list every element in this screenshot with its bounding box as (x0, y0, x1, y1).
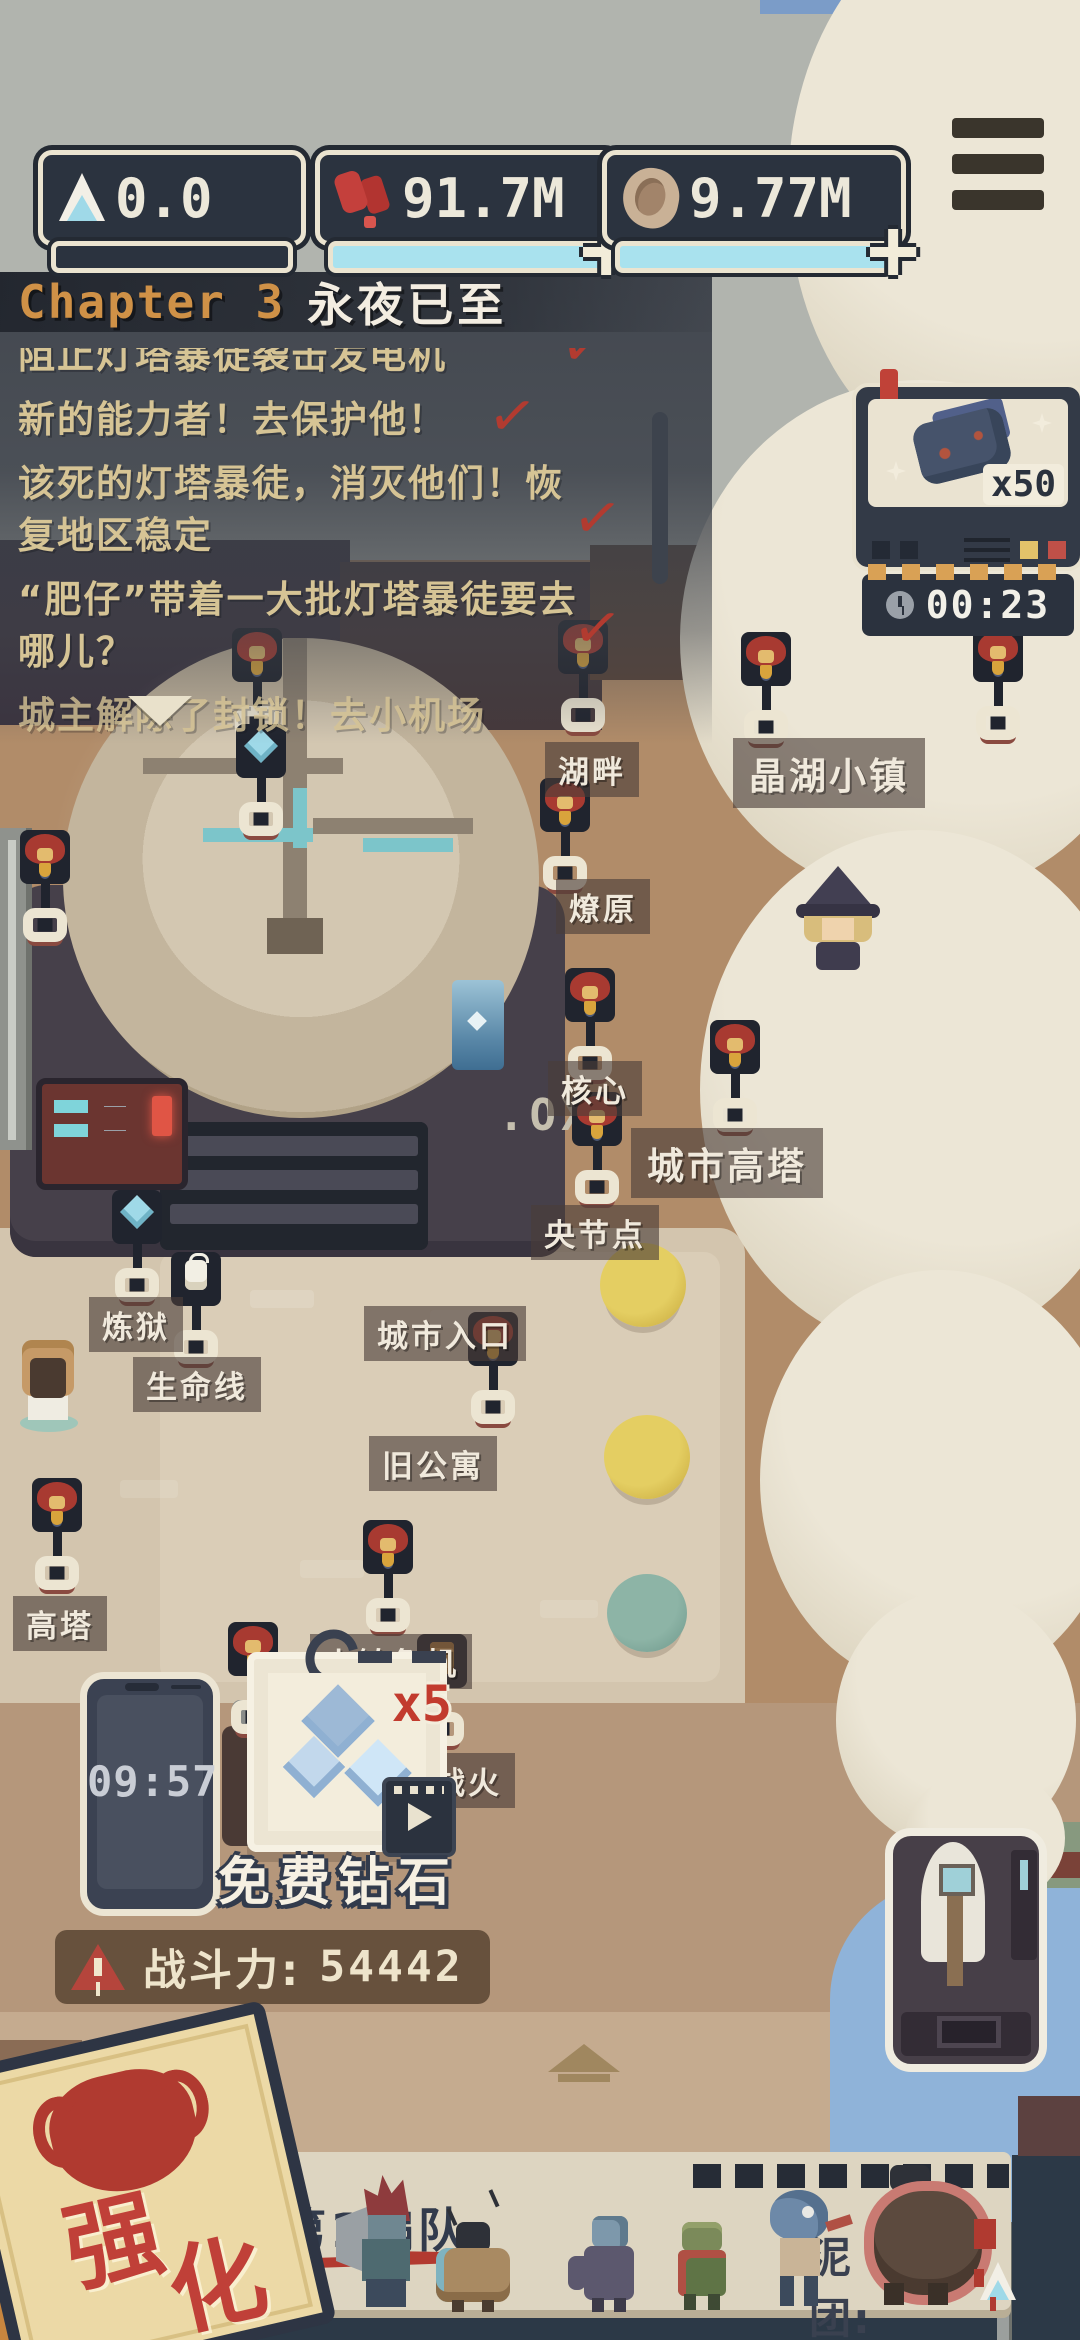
ad-timer: 00:23 (862, 574, 1074, 636)
squad-character-bear-tank (862, 2165, 986, 2313)
red-hood-sign-icon (363, 1520, 413, 1574)
combat-power-badge[interactable]: 战斗力: 54442 (55, 1930, 490, 2004)
map-label-city-entrance: 城市入口 (364, 1306, 526, 1361)
ad-quantity-badge: x50 (983, 464, 1064, 505)
quest-item[interactable]: “肥仔”带着一大批灯塔暴徒要去哪儿？ ✓ (18, 574, 578, 678)
game-screen: .OXE (0, 0, 1080, 2340)
paving-mark (300, 1560, 364, 1578)
ad-reward-widget[interactable]: x50 (852, 383, 1080, 571)
red-hood-sign-icon (565, 968, 615, 1022)
add-shells-button[interactable]: + (867, 207, 919, 293)
ad-timer-value: 00:23 (926, 583, 1050, 627)
red-hood-sign-icon (710, 1020, 760, 1074)
red-hood-sign-icon (32, 1478, 82, 1532)
shrine-side-panel (1011, 1850, 1037, 1960)
quest-item[interactable]: 城主解除了封锁！去小机场 (18, 690, 658, 742)
dome-control-panel (36, 1078, 188, 1190)
right-roof-bit (1018, 2096, 1080, 2156)
expand-chevron-up-icon[interactable] (548, 2044, 620, 2072)
free-diamonds-label: 免费钻石 (218, 1840, 458, 1915)
squad-character-beetle (430, 2222, 520, 2312)
resource-shells-pill[interactable]: 9.77M + (602, 150, 906, 246)
shell-icon (617, 163, 684, 233)
map-label-central-node: 央节点 (531, 1205, 659, 1260)
iceberg-icon (59, 169, 105, 227)
resource-gems-pill[interactable]: 91.7M + (315, 150, 619, 246)
marker-base-ring (976, 706, 1020, 740)
red-hood-sign-icon (741, 632, 791, 686)
combat-power-value: 54442 (319, 1942, 463, 1992)
resource-shells-value: 9.77M (689, 167, 852, 230)
map-label-crystal-lake-town: 晶湖小镇 (733, 738, 925, 808)
quest-item[interactable]: 阻止灯塔暴徒袭击发电机 ✓ (18, 330, 618, 382)
squad-character-robed (570, 2216, 650, 2314)
phone-time: 09:57 (87, 1757, 213, 1806)
quest-scrollbar[interactable] (652, 412, 668, 584)
blue-gem-sign-icon (112, 1190, 162, 1244)
squad-character-green-soldier (668, 2222, 738, 2314)
witch-hat-icon (802, 866, 874, 908)
map-label-city-tower: 城市高塔 (631, 1128, 823, 1198)
ad-reward-screen: x50 (868, 399, 1068, 507)
marker-base-ring (366, 1598, 410, 1632)
resource-ice-pill[interactable]: 0.0 (38, 150, 306, 246)
quest-check-icon: ✓ (570, 599, 627, 658)
marker-base-ring (239, 802, 283, 836)
left-pipe-highlight (8, 840, 16, 1140)
dome-banner (452, 980, 504, 1070)
resource-gems-value: 91.7M (402, 167, 565, 230)
chapter-label: Chapter 3 (18, 275, 285, 329)
combat-power-label: 战斗力: (143, 1936, 301, 1998)
quest-item[interactable]: 该死的灯塔暴徒，消灭他们！恢复地区稳定 ✓ (18, 458, 578, 562)
dome-grille (160, 1122, 428, 1250)
right-column (1012, 2155, 1080, 2340)
paving-mark (540, 1600, 598, 1618)
sparkle-icon (886, 461, 906, 481)
yellow-ball-2 (604, 1415, 690, 1499)
phone-speaker (125, 1683, 159, 1691)
marker-base-ring (471, 1390, 515, 1424)
map-label-high-tower: 高塔 (13, 1596, 107, 1651)
quest-item[interactable]: 新的能力者！去保护他！ ✓ (18, 394, 658, 446)
marker-base-ring (35, 1556, 79, 1590)
free-diamonds-popup[interactable]: x5 (247, 1652, 447, 1852)
phone-widget[interactable]: 09:57 (80, 1672, 220, 1916)
red-gem-icon (336, 168, 392, 228)
quest-collapse-chevron-down-icon[interactable] (128, 696, 192, 726)
squad-character-axe-warrior (330, 2175, 430, 2307)
witch-npc (796, 866, 880, 976)
resource-ice-bar (51, 241, 293, 273)
map-label-purgatory: 炼狱 (89, 1297, 183, 1352)
map-label-core: 核心 (548, 1061, 642, 1116)
chapter-title: 永夜已至 (307, 269, 507, 335)
traveler-npc (16, 1336, 82, 1436)
paving-mark (250, 1290, 314, 1308)
enhance-char-2: 化 (153, 2198, 278, 2340)
marker-base-ring (23, 908, 67, 942)
hamburger-icon (952, 118, 1044, 138)
quest-check-icon: ✓ (485, 387, 542, 446)
warning-icon (71, 1944, 125, 1990)
resource-gems-bar (328, 241, 606, 273)
paving-mark (120, 1480, 178, 1498)
multiplier-badge: x5 (392, 1675, 452, 1733)
marker-base-ring (713, 1098, 757, 1132)
menu-button[interactable] (952, 118, 1044, 226)
map-label-lifeline: 生命线 (133, 1357, 261, 1412)
teal-ball (607, 1574, 687, 1652)
clock-icon (886, 591, 914, 619)
map-label-old-apartment: 旧公寓 (369, 1436, 497, 1491)
dash-decor (358, 1651, 448, 1663)
squad-character-fish-head (762, 2190, 857, 2312)
red-hood-sign-icon (20, 830, 70, 884)
sparkle-icon (1032, 413, 1052, 433)
red-hood-sign-icon (973, 628, 1023, 682)
quest-check-icon: ✓ (570, 489, 627, 548)
quest-panel[interactable]: Chapter 3 永夜已至 阻止灯塔暴徒袭击发电机 ✓ 新的能力者！去保护他！… (0, 272, 712, 744)
map-label-prairie-fire: 燎原 (556, 879, 650, 934)
resource-ice-value: 0.0 (115, 167, 213, 230)
rocket-shrine[interactable] (885, 1828, 1047, 2072)
marker-base-ring (575, 1170, 619, 1204)
resource-shells-bar (615, 241, 893, 273)
